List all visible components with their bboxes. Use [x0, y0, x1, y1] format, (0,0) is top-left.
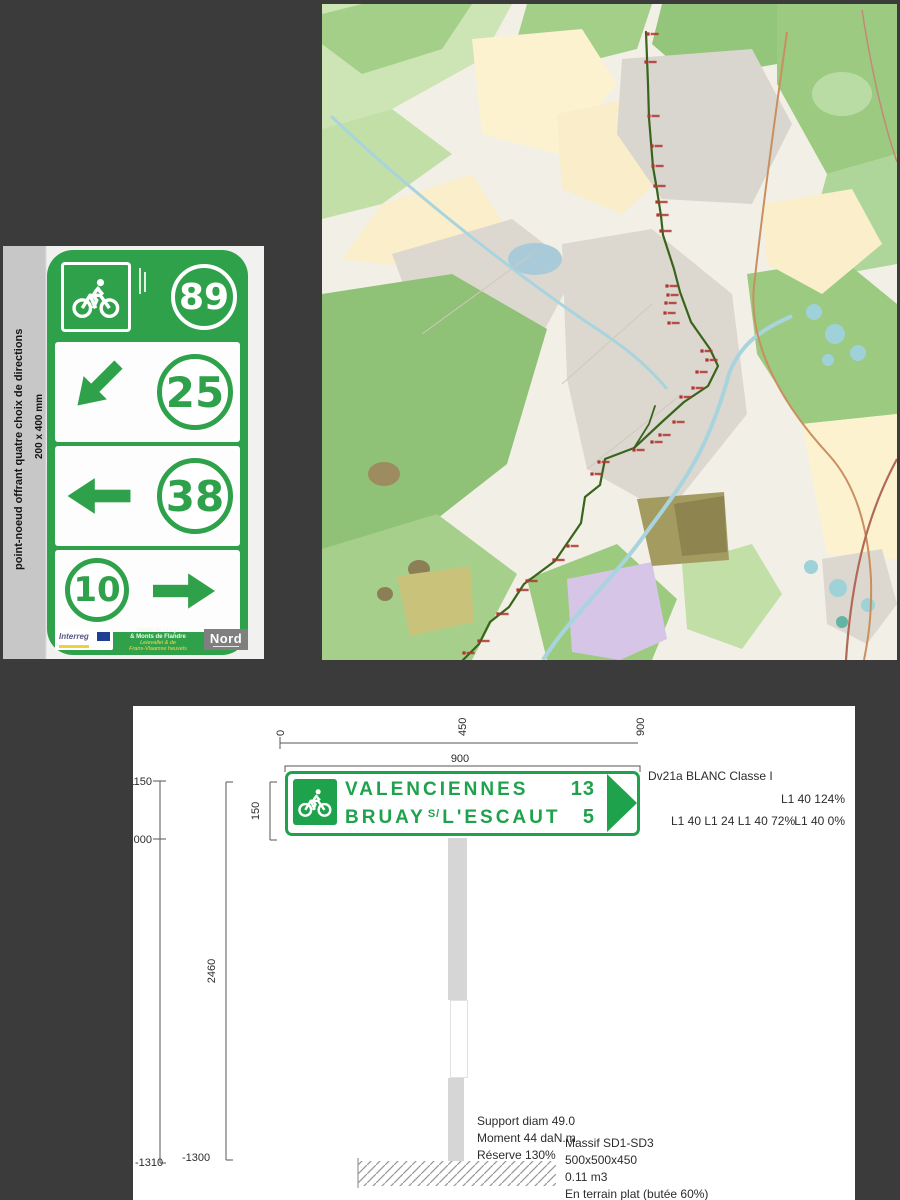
direction-line-1: VALENCIENNES 13 [345, 778, 597, 801]
page-canvas: point-noeud offrant quatre choix de dire… [0, 0, 900, 1200]
direction-sign-face: VALENCIENNES 13 BRUAY S/ L'ESCAUT 5 [285, 771, 640, 836]
node-number: 10 [73, 570, 120, 610]
destination: L'ESCAUT [442, 807, 560, 829]
bicycle-pictogram-box [61, 262, 131, 332]
massif-line: 500x500x450 [565, 1152, 708, 1169]
distance: 5 [583, 806, 595, 829]
massif-line: En terrain plat (butée 60%) [565, 1186, 708, 1200]
support-line: Moment 44 daN.m [477, 1130, 576, 1147]
sur-abbreviation: S/ [428, 808, 440, 820]
node-number-badge: 25 [157, 354, 233, 430]
region-line: Frans-Vlaamse heuvels [114, 646, 202, 652]
arrow-left-icon [67, 475, 131, 517]
sign-post-lower [448, 1078, 464, 1161]
nord-label: Nord [210, 632, 242, 645]
node-number-badge: 10 [65, 558, 129, 622]
nord-department-logo: Nord [204, 629, 248, 650]
elevation-label-1000: 1000 [133, 834, 152, 846]
sign-post-gap [450, 1000, 468, 1078]
node-number-badge: 89 [171, 264, 237, 330]
interreg-accent-bar [59, 645, 89, 648]
node-number: 38 [166, 472, 224, 521]
arrow-down-left-icon [63, 350, 134, 421]
massif-line: Massif SD1-SD3 [565, 1135, 708, 1152]
support-annotation-block: Support diam 49.0 Moment 44 daN.m Réserv… [477, 1113, 576, 1164]
node-number: 25 [166, 368, 224, 417]
eu-flag-icon [97, 632, 110, 641]
arrow-right-icon [153, 570, 215, 612]
bicycle-icon [298, 787, 332, 817]
sign-direction-row: 38 [55, 446, 240, 546]
route-map [322, 4, 897, 660]
elevation-label-1150: 1150 [133, 776, 152, 788]
bicycle-icon [72, 276, 120, 318]
sign-direction-row: 10 [55, 550, 240, 632]
l1-annotation: L1 40 L1 24 L1 40 72% [671, 814, 795, 828]
sign-post-upper [448, 838, 467, 1000]
ruler-label-900: 900 [635, 718, 647, 736]
support-line: Support diam 49.0 [477, 1113, 576, 1130]
tiny-vertical-text-mark [139, 268, 141, 294]
massif-annotation-block: Massif SD1-SD3 500x500x450 0.11 m3 En te… [565, 1135, 708, 1200]
support-line: Réserve 130% [477, 1147, 576, 1164]
bicycle-node-sign: 89 25 38 [47, 250, 248, 655]
height-dim-label: 2460 [206, 959, 218, 983]
massif-line: 0.11 m3 [565, 1169, 708, 1186]
interreg-logo: Interreg [55, 629, 113, 650]
distance: 13 [571, 778, 595, 801]
signage-spec-card: point-noeud offrant quatre choix de dire… [3, 246, 264, 659]
sign-installation-drawing: 0 450 900 900 1150 1000 -1310 -1300 2460… [133, 706, 855, 1200]
width-dim-label: 900 [451, 753, 469, 765]
sign-height-dim-label: 150 [250, 802, 262, 820]
ruler-label-450: 450 [457, 718, 469, 736]
sign-arrow-tip [607, 774, 637, 832]
node-number-badge: 38 [157, 458, 233, 534]
direction-sign-text: VALENCIENNES 13 BRUAY S/ L'ESCAUT 5 [345, 775, 597, 832]
ruler-label-0: 0 [275, 730, 287, 736]
nord-sub-mark [213, 646, 239, 648]
panel-class-annotation: Dv21a BLANC Classe I [648, 769, 773, 783]
elevation-label-ground-right: -1300 [182, 1152, 210, 1164]
destination: BRUAY [345, 807, 426, 829]
l1-annotation: L1 40 124% [773, 792, 845, 806]
elevation-label-ground-left: -1310 [135, 1157, 163, 1169]
region-text: Vallée de la Lys & Monts de Flandre Leie… [114, 628, 202, 652]
bicycle-pictogram-box [293, 779, 337, 825]
ground-hatch [358, 1161, 556, 1186]
interreg-label: Interreg [59, 632, 89, 641]
sign-footer-logos: Interreg Vallée de la Lys & Monts de Fla… [53, 628, 242, 652]
sign-direction-row: 25 [55, 342, 240, 442]
destination: VALENCIENNES [345, 779, 528, 801]
map-image [322, 4, 897, 660]
spec-vertical-caption: point-noeud offrant quatre choix de dire… [13, 284, 25, 614]
spec-size-caption: 200 x 400 mm [34, 346, 45, 506]
tiny-vertical-text-mark [144, 272, 146, 292]
direction-line-2: BRUAY S/ L'ESCAUT 5 [345, 806, 597, 829]
l1-annotation: L1 40 0% [783, 814, 845, 828]
node-number: 89 [179, 277, 229, 318]
sign-header-row: 89 [55, 256, 240, 338]
